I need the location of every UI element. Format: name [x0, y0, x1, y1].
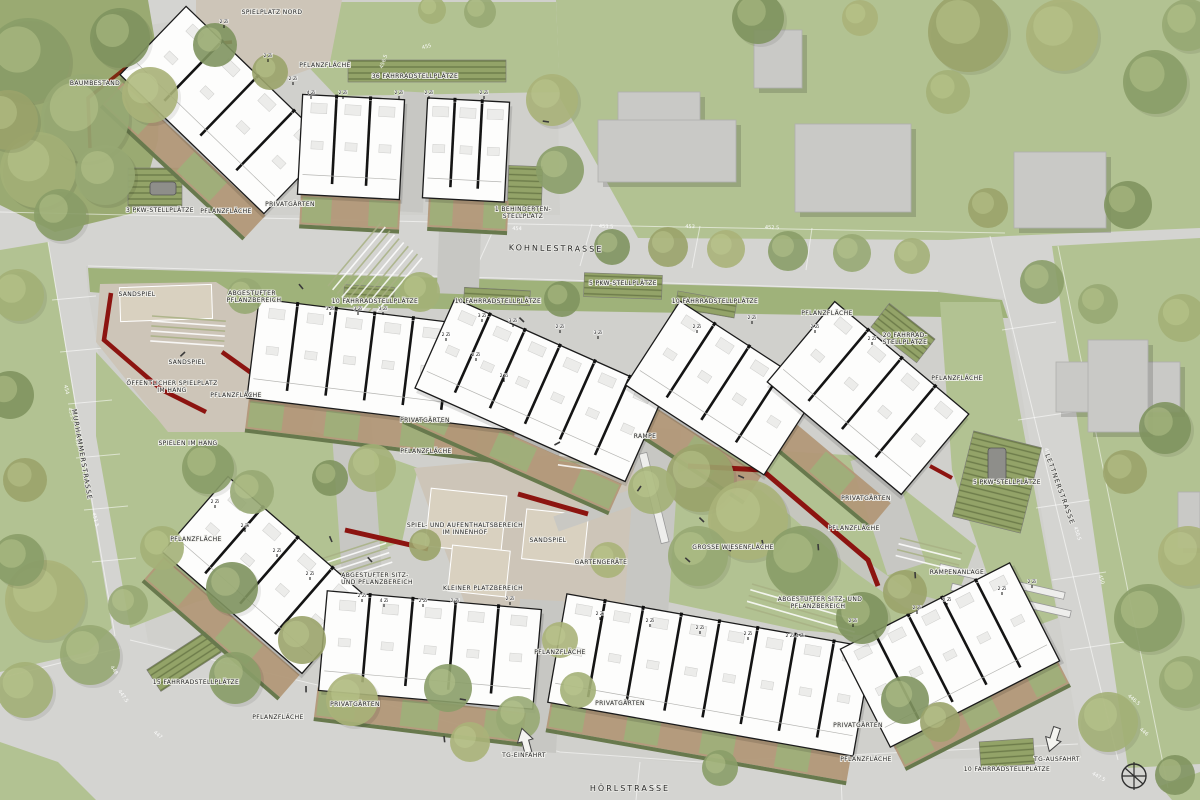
tree-highlight	[1129, 56, 1164, 91]
area-label-abgestufter-sitz-und: ABGESTUFTER SITZ- UND	[778, 596, 863, 603]
tree-highlight	[3, 668, 34, 699]
unit-label-2-zi-15: 2 Zi	[442, 332, 451, 338]
tree-highlight	[112, 589, 134, 611]
tree-highlight	[454, 726, 476, 748]
unit-label-2-zi-7: 2 Zi	[480, 90, 489, 96]
area-label-pflanzfl-che: PFLANZFLÄCHE	[299, 62, 350, 69]
unit-label-2-zi-32: 2 Zi	[646, 618, 655, 624]
unit-label-2-zi-5: 2 Zi	[395, 90, 404, 96]
tree-highlight	[898, 242, 918, 262]
area-label-stellpl-tze: STELLPLÄTZE	[883, 339, 928, 346]
tree-highlight	[256, 58, 276, 78]
tree-highlight	[50, 83, 98, 131]
area-label-sandspiel: SANDSPIEL	[529, 537, 566, 544]
unit-label-2-zi-0: 2 Zi	[220, 19, 229, 25]
tree-highlight	[1084, 698, 1117, 731]
area-label-sandspiel: SANDSPIEL	[118, 291, 155, 298]
unit-label-4-zi-3: 4 Zi	[307, 90, 316, 96]
area-label-spiel-und-aufenthaltsbereich: SPIEL- UND AUFENTHALTSBEREICH	[407, 522, 523, 529]
existing-building	[1088, 340, 1148, 432]
tree-highlight	[716, 488, 760, 532]
area-label-15-fahrradstellpl-tze: 15 FAHRRADSTELLPLÄTZE	[153, 679, 240, 686]
tree-highlight	[283, 621, 309, 647]
unit-label-2-zi-23: 2 Zi	[241, 523, 250, 529]
unit-label-2-zi-2: 2 Zi	[289, 76, 298, 82]
existing-building	[795, 124, 911, 212]
tree-highlight	[773, 533, 813, 573]
existing-building	[598, 120, 736, 182]
tree-highlight	[1121, 591, 1158, 628]
parked-car	[150, 182, 176, 195]
unit-label-2-zi-17: 2 Zi	[500, 373, 509, 379]
unit-label-2-zi-33: 2 Zi	[696, 625, 705, 631]
area-label-pflanzfl-che: PFLANZFLÄCHE	[200, 208, 251, 215]
site-plan: 2 Zi2 Zi2 Zi4 Zi2 Zi2 Zi2 Zi2 Zi3 Zi3 Zi…	[0, 0, 1200, 800]
tree-highlight	[39, 194, 68, 223]
area-label-tg-ausfahrt: TG-AUSFAHRT	[1033, 756, 1080, 763]
area-label-grosse-wiesenfl-che: GROSSE WIESENFLÄCHE	[692, 544, 773, 551]
elevation-label-453: 453	[685, 224, 695, 230]
surface	[119, 284, 212, 321]
tree-highlight	[81, 151, 114, 184]
unit-label-2-zi-16: 2 Zi	[472, 352, 481, 358]
area-label-und-pflanzbereich: UND PFLANZBEREICH	[341, 579, 413, 586]
area-label-pflanzbereich: PFLANZBEREICH	[791, 603, 846, 610]
tree-highlight	[66, 631, 99, 664]
tree-highlight	[1107, 454, 1131, 478]
residential-building-row	[297, 93, 407, 204]
area-label-pflanzfl-che: PFLANZFLÄCHE	[931, 375, 982, 382]
area-label-3-pkw-stellpl-tze: 3 PKW-STELLPLÄTZE	[126, 207, 194, 214]
unit-label-2-zi-21: 2 Zi	[868, 336, 877, 342]
unit-label-2-zi-37: 2 Zi	[913, 605, 922, 611]
tree-highlight	[211, 567, 240, 596]
unit-label-2-zi-29: 2 Zi	[451, 598, 460, 604]
tree-highlight	[404, 276, 426, 298]
tree-highlight	[412, 532, 430, 550]
unit-label-2-zi-31: 2 Zi	[596, 611, 605, 617]
tree-highlight	[772, 235, 794, 257]
area-label-5-pkw-stellpl-tze: 5 PKW-STELLPLÄTZE	[973, 479, 1041, 486]
area-label-spielplatz-nord: SPIELPLATZ NORD	[242, 9, 303, 16]
residential-building-row	[422, 96, 512, 206]
unit-label-2-zi-20: 2 Zi	[811, 324, 820, 330]
tree-highlight	[316, 464, 336, 484]
area-label-pflanzfl-che: PFLANZFLÄCHE	[840, 756, 891, 763]
area-label-1-behinderten: 1 BEHINDERTEN-	[495, 206, 551, 213]
tree-highlight	[500, 700, 524, 724]
area-label-kleiner-platzbereich: KLEINER PLATZBEREICH	[443, 585, 523, 592]
area-label-privatg-rten: PRIVATGÄRTEN	[330, 701, 380, 708]
area-label-10-fahrradstellpl-tze: 10 FAHRRADSTELLPLÄTZE	[455, 298, 542, 305]
tree-highlight	[924, 706, 946, 728]
tree-highlight	[972, 192, 994, 214]
tree-highlight	[144, 530, 168, 554]
tree-highlight	[1167, 4, 1196, 33]
tree-highlight	[887, 574, 911, 598]
unit-label-2-zi-26: 2 Zi	[358, 593, 367, 599]
area-label-sandspiel: SANDSPIEL	[168, 359, 205, 366]
unit-label-2-zi-28: 2 Zi	[419, 598, 428, 604]
tree-highlight	[673, 451, 710, 488]
elevation-label-453-5: 453.5	[599, 224, 614, 230]
area-label-ffentlicher-spielplatz: ÖFFENTLICHER SPIELPLATZ	[126, 380, 217, 387]
tree-highlight	[930, 74, 954, 98]
unit-label-3-zi-9: 3 Zi	[354, 306, 363, 312]
parking-area	[979, 738, 1035, 768]
tree-highlight	[886, 681, 912, 707]
tree-highlight	[837, 238, 858, 259]
tree-highlight	[711, 234, 732, 255]
tree-highlight	[546, 626, 566, 646]
unit-label-2-zi-13: 2 Zi	[556, 324, 565, 330]
area-label-privatg-rten: PRIVATGÄRTEN	[833, 722, 883, 729]
tree-highlight	[541, 151, 567, 177]
area-label-pflanzfl-che: PFLANZFLÄCHE	[828, 525, 879, 532]
unit-label-2-zi-4: 2 Zi	[339, 90, 348, 96]
elevation-label-454: 454	[512, 226, 522, 232]
tree-highlight	[429, 669, 455, 695]
area-label-pflanzbereich: PFLANZBEREICH	[227, 297, 282, 304]
area-label-im-hang: IM HANG	[157, 387, 186, 394]
tree-highlight	[1163, 299, 1189, 325]
area-label-abgestufter-sitz: ABGESTUFTER SITZ-	[341, 572, 409, 579]
area-label-pflanzfl-che: PFLANZFLÄCHE	[252, 714, 303, 721]
existing-building	[1014, 152, 1106, 228]
area-label-pflanzfl-che: PFLANZFLÄCHE	[210, 392, 261, 399]
tree-highlight	[353, 449, 379, 475]
unit-label-2-zi-24: 2 Zi	[273, 548, 282, 554]
tree-highlight	[187, 447, 216, 476]
area-label-privatg-rten: PRIVATGÄRTEN	[265, 201, 315, 208]
unit-label-3-zi-14: 3 Zi	[594, 330, 603, 336]
area-label-10-fahrradstellpl-tze: 10 FAHRRADSTELLPLÄTZE	[332, 298, 419, 305]
area-label-rampe: RAMPE	[634, 433, 657, 440]
unit-label-2-zi-4-zi-35: 2 Zi 4 Zi	[785, 633, 804, 639]
tree-highlight	[1082, 288, 1104, 310]
area-label-privatg-rten: PRIVATGÄRTEN	[400, 417, 450, 424]
tree-highlight	[1024, 264, 1048, 288]
unit-label-2-zi-39: 2 Zi	[998, 586, 1007, 592]
unit-label-3-zi-10: 3 Zi	[379, 306, 388, 312]
area-label-36-fahrradstellpl-tze: 36 FAHRRADSTELLPLÄTZE	[372, 73, 459, 80]
unit-label-2-zi-38: 2 Zi	[943, 597, 952, 603]
unit-label-2-zi-19: 2 Zi	[748, 315, 757, 321]
area-label-10-fahrradstellpl-tze: 10 FAHRRADSTELLPLÄTZE	[964, 766, 1051, 773]
tree-highlight	[706, 754, 726, 774]
area-label-tg-einfahrt: TG-EINFAHRT	[501, 752, 546, 759]
unit-label-3-zi-8: 3 Zi	[326, 306, 335, 312]
area-label-20-fahrrad: 20 FAHRRAD-	[883, 332, 927, 339]
area-label-gartenger-te: GARTENGERÄTE	[575, 559, 628, 566]
area-label-pflanzfl-che: PFLANZFLÄCHE	[534, 649, 585, 656]
area-label-privatg-rten: PRIVATGÄRTEN	[841, 495, 891, 502]
area-label-privatg-rten: PRIVATGÄRTEN	[595, 700, 645, 707]
area-label-stellplatz: STELLPLATZ	[503, 213, 543, 220]
tree-highlight	[548, 285, 568, 305]
tree-highlight	[652, 231, 674, 253]
area-label-10-fahrradstellpl-tze: 10 FAHRRADSTELLPLÄTZE	[672, 298, 759, 305]
area-label-baumbestand: BAUMBESTAND	[70, 80, 120, 87]
tree-highlight	[1109, 186, 1135, 212]
tree-highlight	[197, 27, 221, 51]
unit-label-3-zi-12: 3 Zi	[509, 318, 518, 324]
tree-highlight	[1159, 759, 1181, 781]
area-label-im-innenhof: IM INNENHOF	[443, 529, 488, 536]
tree-highlight	[467, 0, 485, 17]
tree-highlight	[1164, 661, 1193, 690]
site-plan-drawing: 2 Zi2 Zi2 Zi4 Zi2 Zi2 Zi2 Zi2 Zi3 Zi3 Zi…	[0, 0, 1200, 800]
unit-label-2-zi-6: 2 Zi	[425, 90, 434, 96]
unit-label-2-zi-22: 2 Zi	[211, 499, 220, 505]
parked-car	[988, 448, 1006, 480]
tree-highlight	[633, 471, 659, 497]
tree-highlight	[846, 4, 866, 24]
area-label-rampenanlage: RAMPENANLAGE	[930, 569, 984, 576]
tree-highlight	[1033, 6, 1073, 46]
street-label-kohnlestrasse: KOHNLESTRASSE	[509, 243, 604, 254]
tree-highlight	[96, 14, 129, 47]
existing-building	[618, 92, 700, 124]
street-label-h-rlstrasse: HÖRLSTRASSE	[590, 783, 670, 793]
tree-highlight	[1144, 407, 1173, 436]
unit-label-2-zi-30: 2 Zi	[506, 596, 515, 602]
unit-label-2-zi-18: 2 Zi	[693, 324, 702, 330]
unit-label-3-zi-11: 3 Zi	[478, 313, 487, 319]
unit-label-4-zi-27: 4 Zi	[380, 598, 389, 604]
unit-label-2-zi-25: 2 Zi	[306, 571, 315, 577]
tree-highlight	[936, 0, 980, 44]
unit-label-2-zi-1: 2 Zi	[264, 53, 273, 59]
tree-highlight	[128, 73, 159, 104]
area-label-5-pkw-stellpl-tze: 5 PKW-STELLPLÄTZE	[589, 280, 657, 287]
elevation-label-452-5: 452.5	[765, 225, 780, 231]
area-label-pflanzfl-che: PFLANZFLÄCHE	[170, 536, 221, 543]
area-label-pflanzfl-che: PFLANZFLÄCHE	[400, 448, 451, 455]
area-label-abgestufter: ABGESTUFTER	[228, 290, 276, 297]
tree-highlight	[564, 676, 584, 696]
tree-highlight	[531, 79, 560, 108]
unit-label-2-zi-36: 2 Zi	[849, 618, 858, 624]
tree-highlight	[1164, 532, 1197, 565]
tree-highlight	[234, 474, 258, 498]
unit-label-2-zi-40: 2 Zi	[1028, 579, 1037, 585]
unit-label-2-zi-34: 2 Zi	[744, 631, 753, 637]
area-label-pflanzfl-che: PFLANZFLÄCHE	[801, 310, 852, 317]
tree-highlight	[7, 462, 31, 486]
area-label-spielen-im-hang: SPIELEN IM HANG	[158, 440, 217, 447]
